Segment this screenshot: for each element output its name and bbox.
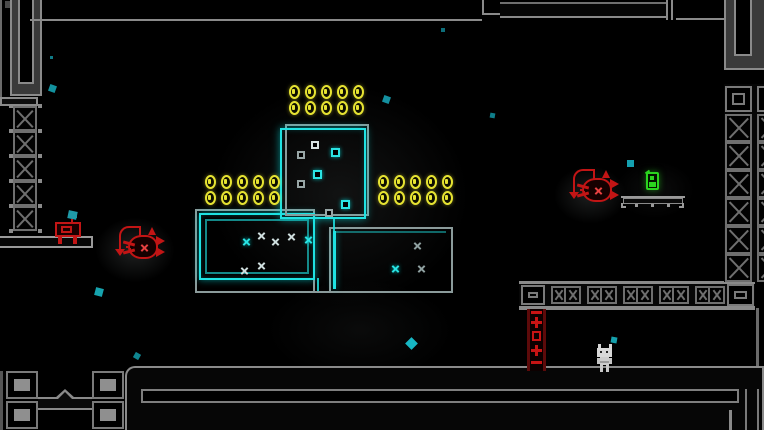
room-x-mark xyxy=(304,235,313,244)
particle xyxy=(48,84,57,93)
coin-highlight xyxy=(445,179,448,184)
battery-item xyxy=(644,169,662,191)
coin xyxy=(305,85,316,99)
coin-highlight xyxy=(324,89,327,94)
coin xyxy=(353,101,364,115)
coin-highlight xyxy=(397,195,400,200)
coin xyxy=(442,191,453,205)
coin-highlight xyxy=(381,179,384,184)
double-x-pattern-block xyxy=(695,286,725,304)
coin-highlight xyxy=(240,195,243,200)
left-column-tick xyxy=(38,179,42,183)
station-room-top-neon xyxy=(280,128,366,219)
coin-highlight xyxy=(429,179,432,184)
coin xyxy=(410,175,421,189)
x-pattern-block xyxy=(13,206,37,231)
ladder-cross xyxy=(531,349,542,352)
fish-tooth xyxy=(580,189,582,191)
coin xyxy=(442,175,453,189)
coin xyxy=(410,191,421,205)
checkpoint-station xyxy=(54,208,84,246)
x-pattern-block xyxy=(757,170,764,198)
bench-tick xyxy=(667,204,670,207)
x-cell xyxy=(710,288,723,302)
coin-highlight xyxy=(413,179,416,184)
wall-topright-trim xyxy=(724,70,764,79)
room-decor-square xyxy=(297,180,305,188)
coin-highlight xyxy=(224,179,227,184)
coin xyxy=(353,85,364,99)
particle xyxy=(94,287,104,297)
square-pattern-block xyxy=(6,371,38,399)
floor-right-line xyxy=(745,389,747,430)
x-pattern-block xyxy=(13,131,37,156)
coin xyxy=(237,191,248,205)
station-bottom-line xyxy=(315,291,333,293)
double-x-pattern-block xyxy=(551,286,581,304)
coin-highlight xyxy=(224,195,227,200)
room-decor-square xyxy=(311,141,319,149)
fish-eye-x xyxy=(594,186,603,195)
coin xyxy=(253,191,264,205)
coin-highlight xyxy=(256,195,259,200)
station-room-right-outer xyxy=(329,227,453,293)
fish-eye-x xyxy=(140,243,149,252)
coin xyxy=(269,191,280,205)
bench-platform xyxy=(621,195,685,209)
x-pattern-block xyxy=(13,156,37,181)
x-pattern-block xyxy=(725,114,752,142)
square-inner-filled xyxy=(100,409,116,421)
x-cell xyxy=(697,288,710,302)
wall-top-trim xyxy=(30,10,482,19)
x-cell xyxy=(566,288,579,302)
player-character xyxy=(595,342,615,373)
square-pattern-block xyxy=(92,401,124,429)
beam-bottom-line xyxy=(519,306,755,310)
coin-highlight xyxy=(208,179,211,184)
room-x-mark xyxy=(287,232,296,241)
x-pattern-block xyxy=(757,226,764,254)
floor-right-line xyxy=(757,389,759,430)
room-decor-square xyxy=(297,151,305,159)
x-pattern-block xyxy=(725,226,752,254)
coin-highlight xyxy=(292,105,295,110)
fish-fin xyxy=(602,170,610,178)
coin-highlight xyxy=(272,195,275,200)
coin xyxy=(221,175,232,189)
coin-highlight xyxy=(445,195,448,200)
room-decor-square xyxy=(331,148,340,157)
wall-topright-slot xyxy=(734,0,752,56)
left-column-tick xyxy=(38,129,42,133)
wall-top-band xyxy=(500,2,666,18)
coin xyxy=(337,101,348,115)
coin-highlight xyxy=(340,89,343,94)
coin-highlight xyxy=(272,179,275,184)
square-pattern-block xyxy=(757,86,764,112)
coin-highlight xyxy=(340,105,343,110)
coin-highlight xyxy=(381,195,384,200)
anglerfish-enemy-right xyxy=(566,164,624,206)
x-cell xyxy=(625,288,638,302)
coin-highlight xyxy=(356,105,359,110)
x-pattern-block xyxy=(13,181,37,206)
coin xyxy=(378,191,389,205)
wall-top-corner-v xyxy=(671,0,673,20)
x-pattern-block xyxy=(725,254,752,282)
coin-highlight xyxy=(308,89,311,94)
double-x-pattern-block xyxy=(587,286,617,304)
fish-tooth xyxy=(129,248,131,250)
room-decor-square xyxy=(313,170,322,179)
station-room-right-neon-edge xyxy=(333,231,336,289)
bench-foot xyxy=(679,203,684,208)
bench-tick xyxy=(635,204,638,207)
room-x-mark xyxy=(242,237,251,246)
double-x-pattern-block xyxy=(659,286,689,304)
battery-body xyxy=(646,172,659,190)
fish-tail-spike xyxy=(156,247,165,257)
wall-top-corner-v xyxy=(666,0,668,20)
coin-highlight xyxy=(208,195,211,200)
ladder-bar xyxy=(531,361,542,364)
battery-cell xyxy=(649,182,656,187)
x-cell xyxy=(638,288,651,302)
particle xyxy=(133,352,141,360)
particle xyxy=(50,56,53,59)
left-column-tick xyxy=(38,204,42,208)
x-pattern-block xyxy=(725,170,752,198)
coin xyxy=(289,101,300,115)
square-inner-filled xyxy=(100,379,116,391)
double-x-pattern-block xyxy=(623,286,653,304)
red-ladder xyxy=(527,309,546,371)
coin xyxy=(253,175,264,189)
square-pattern-block xyxy=(92,371,124,399)
left-wall-trim xyxy=(4,233,13,371)
anglerfish-enemy-left xyxy=(112,221,170,263)
room-x-mark xyxy=(391,264,400,273)
square-pattern-block xyxy=(725,86,752,112)
fish-tail-spike xyxy=(610,179,619,189)
square-inner-filled xyxy=(14,409,30,421)
coin-highlight xyxy=(413,195,416,200)
x-cell xyxy=(661,288,674,302)
particle xyxy=(490,113,496,119)
coin xyxy=(289,85,300,99)
fish-tooth xyxy=(583,191,585,193)
coin xyxy=(394,191,405,205)
wall-top-step-h xyxy=(482,13,500,15)
fish-fin xyxy=(148,227,156,235)
square-pattern-block xyxy=(6,401,38,429)
wall-top-trim xyxy=(676,8,724,17)
coin xyxy=(426,175,437,189)
room-x-mark xyxy=(271,237,280,246)
square-pattern-block xyxy=(521,285,545,305)
wall-left-edge-line xyxy=(0,0,2,100)
coin-highlight xyxy=(308,105,311,110)
x-pattern-block xyxy=(757,198,764,226)
fish-tail-spike xyxy=(610,190,619,200)
x-pattern-block xyxy=(757,254,764,282)
coin xyxy=(426,191,437,205)
checkpoint-leg xyxy=(73,237,77,244)
bench-foot xyxy=(621,203,626,208)
coin-highlight xyxy=(356,89,359,94)
coin xyxy=(378,175,389,189)
room-x-mark xyxy=(417,264,426,273)
square-inner xyxy=(732,93,745,105)
coin xyxy=(337,85,348,99)
ladder-bar xyxy=(531,311,542,314)
coin-highlight xyxy=(324,105,327,110)
square-pattern-block xyxy=(727,284,754,306)
coin-highlight xyxy=(429,195,432,200)
room-x-mark xyxy=(257,261,266,270)
x-cell xyxy=(674,288,687,302)
player-eye xyxy=(606,351,608,353)
particle xyxy=(441,28,445,32)
floor-corner-line xyxy=(729,410,732,430)
coin-highlight xyxy=(256,179,259,184)
coin xyxy=(205,191,216,205)
square-inner xyxy=(528,292,538,298)
player-arm xyxy=(609,358,612,364)
wall-top-line xyxy=(676,18,724,20)
ladder-cross xyxy=(531,321,542,324)
square-inner-filled xyxy=(14,379,30,391)
fish-tail-spike xyxy=(156,236,165,246)
station-corridor-line xyxy=(333,217,335,231)
left-column-cap xyxy=(0,97,38,106)
fish-tooth xyxy=(126,246,128,248)
coin-highlight xyxy=(240,179,243,184)
connector-arrow-inner xyxy=(58,392,72,399)
coin-highlight xyxy=(292,89,295,94)
coin xyxy=(394,175,405,189)
x-pattern-block xyxy=(725,198,752,226)
player-leg xyxy=(606,365,609,372)
bench-tick xyxy=(651,204,654,207)
left-column-tick xyxy=(38,229,42,233)
coin xyxy=(221,191,232,205)
coin xyxy=(321,85,332,99)
player-belt xyxy=(600,361,609,363)
x-pattern-block xyxy=(725,142,752,170)
x-cell xyxy=(602,288,615,302)
coin-highlight xyxy=(397,179,400,184)
checkpoint-screen xyxy=(61,226,72,233)
station-room-right-neon-top xyxy=(336,231,446,233)
left-column-tick xyxy=(38,104,42,108)
x-pattern-block xyxy=(13,106,37,131)
player-leg xyxy=(600,365,603,372)
player-arm xyxy=(597,358,600,364)
battery-pip xyxy=(650,176,654,180)
x-pattern-block xyxy=(757,142,764,170)
x-pattern-block xyxy=(757,114,764,142)
coin xyxy=(205,175,216,189)
wall-top-line xyxy=(30,19,482,21)
room-x-mark xyxy=(240,266,249,275)
bottom-left-edge xyxy=(0,371,3,430)
room-x-mark xyxy=(413,241,422,250)
room-decor-square xyxy=(341,200,350,209)
x-cell xyxy=(553,288,566,302)
room-decor-square xyxy=(325,209,333,217)
coin xyxy=(269,175,280,189)
left-column-tick xyxy=(38,154,42,158)
square-inner xyxy=(734,291,747,299)
floor-slot xyxy=(141,389,739,403)
wall-topleft-dashes xyxy=(25,4,28,80)
checkpoint-leg xyxy=(58,237,62,244)
x-cell xyxy=(589,288,602,302)
floor-trim xyxy=(136,410,728,419)
room-x-mark xyxy=(257,231,266,240)
coin xyxy=(237,175,248,189)
ladder-square xyxy=(532,331,541,341)
game-viewport[interactable] xyxy=(0,0,764,430)
coin xyxy=(305,101,316,115)
player-eye xyxy=(600,351,602,353)
floor-trim xyxy=(136,374,756,383)
coin xyxy=(321,101,332,115)
particle xyxy=(627,160,634,167)
